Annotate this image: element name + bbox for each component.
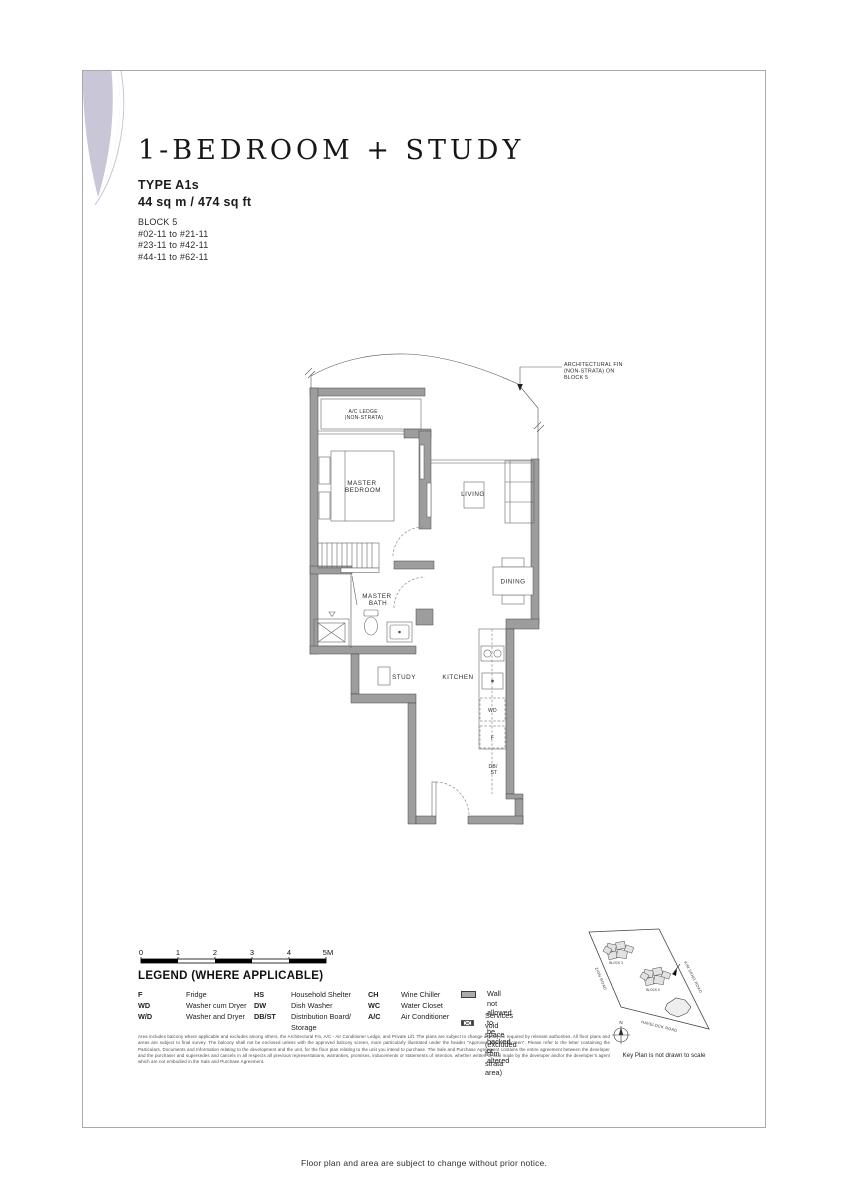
scale-tick: 3 — [250, 948, 254, 957]
legend-item: A/C Air Conditioner — [368, 1011, 449, 1022]
road-label-zion: ZION ROAD — [594, 966, 608, 990]
study-desk — [378, 667, 390, 685]
legend: LEGEND (WHERE APPLICABLE) F Fridge WD Wa… — [138, 970, 658, 982]
entry-door-leaf — [432, 782, 436, 816]
legend-item: WC Water Closet — [368, 1000, 449, 1011]
key-plan: BLOCK 3 BLOCK 5 ZION ROAD KIM SENG ROAD … — [581, 914, 739, 1064]
block3-label: BLOCK 3 — [609, 961, 623, 965]
entry — [432, 782, 469, 816]
shower — [314, 619, 349, 646]
ac-ledge-label: A/C LEDGE (NON-STRATA) — [345, 409, 384, 421]
dining-area: DINING — [493, 558, 533, 604]
wardrobe — [318, 543, 379, 573]
scale-seg — [289, 959, 326, 963]
arrow-down-icon — [517, 384, 523, 391]
road-label-kim-seng: KIM SENG ROAD — [683, 960, 703, 994]
legend-column-1: F Fridge WD Washer cum Dryer W/D Washer … — [138, 989, 247, 1022]
block5-label: BLOCK 5 — [646, 988, 660, 992]
scale-tick: 2 — [213, 948, 217, 957]
floorplan-page: { "header": { "title": "1-BEDROOM + STUD… — [0, 0, 848, 1200]
master-bedroom-label: MASTER BEDROOM — [345, 480, 381, 494]
hob — [481, 646, 504, 661]
legend-column-3: CH Wine Chiller WC Water Closet A/C Air … — [368, 989, 449, 1022]
page-title: 1-BEDROOM + STUDY — [138, 135, 524, 166]
bedroom-window — [318, 431, 404, 434]
break-mark — [305, 368, 315, 378]
legend-item: CH Wine Chiller — [368, 989, 449, 1000]
scale-tick: 1 — [176, 948, 180, 957]
kitchen: WD F KITCHEN DB/ ST — [442, 629, 506, 794]
living-window — [431, 460, 531, 463]
key-plan-caption: Key Plan is not drawn to scale — [623, 1052, 706, 1059]
legend-item: WD Washer cum Dryer — [138, 1000, 247, 1011]
page-footer: Floor plan and area are subject to chang… — [0, 1158, 848, 1168]
floor-plan: ARCHITECTURAL FIN (NON-STRATA) ON BLOCK … — [301, 351, 641, 851]
living-label: LIVING — [461, 491, 485, 498]
scale-tick: 5M — [323, 948, 333, 957]
nightstand — [319, 457, 330, 484]
dining-label: DINING — [500, 579, 525, 586]
petal-decoration — [83, 71, 145, 211]
legend-item: DW Dish Washer — [254, 1000, 351, 1011]
scale-bar: 0 1 2 3 4 5M — [135, 947, 355, 969]
sliding-door-panel — [427, 483, 431, 517]
scale-seg — [141, 959, 178, 963]
study-nook: STUDY — [378, 667, 416, 685]
kitchen-label: KITCHEN — [442, 674, 473, 681]
block3-cluster — [603, 941, 634, 960]
dbst-label: DB/ ST — [489, 764, 500, 776]
wall-no-hack-icon — [461, 991, 476, 998]
neighbour-building — [665, 998, 691, 1017]
master-bath-label: MASTER BATH — [362, 593, 394, 607]
living-room: LIVING — [461, 461, 534, 523]
legend-item: HS Household Shelter — [254, 989, 351, 1000]
legend-title: LEGEND (WHERE APPLICABLE) — [138, 970, 658, 982]
compass-needle — [619, 1028, 624, 1036]
road-label-havelock: HAVELOCK ROAD — [641, 1019, 678, 1033]
fin-annotation: ARCHITECTURAL FIN (NON-STRATA) ON BLOCK … — [517, 362, 624, 391]
unit-range: #44-11 to #62-11 — [138, 252, 208, 264]
sofa — [505, 461, 534, 523]
sliding-door-panel — [420, 445, 424, 479]
bedroom-door-arc — [393, 527, 425, 556]
nightstand — [319, 492, 330, 519]
block-info: BLOCK 5 #02-11 to #21-11 #23-11 to #42-1… — [138, 217, 208, 263]
scale-tick: 4 — [287, 948, 291, 957]
fin-label: ARCHITECTURAL FIN (NON-STRATA) ON BLOCK … — [564, 362, 624, 381]
floor-trap-icon — [329, 612, 335, 617]
block-label: BLOCK 5 — [138, 217, 208, 229]
kitchen-sink — [482, 673, 503, 689]
brochure-card: 1-BEDROOM + STUDY TYPE A1s 44 sq m / 474… — [82, 70, 766, 1128]
legend-item: F Fridge — [138, 989, 247, 1000]
wd-label: WD — [488, 708, 497, 714]
dining-chair — [502, 558, 524, 567]
bath-door-arc — [394, 577, 425, 608]
master-bath: MASTER BATH — [314, 574, 425, 648]
toilet — [364, 610, 378, 635]
master-bedroom: MASTER BEDROOM — [318, 451, 425, 573]
legend-column-2: HS Household Shelter DW Dish Washer DB/S… — [254, 989, 351, 1033]
unit-location-arrow — [672, 964, 680, 976]
walls — [310, 388, 539, 824]
compass: N — [612, 1020, 630, 1044]
unit-range: #23-11 to #42-11 — [138, 240, 208, 252]
vanity-sink — [387, 622, 412, 642]
unit-type: TYPE A1s — [138, 178, 199, 192]
compass-north-label: N — [619, 1020, 622, 1025]
unit-range: #02-11 to #21-11 — [138, 229, 208, 241]
dining-chair — [502, 595, 524, 604]
block5-cluster — [640, 967, 671, 986]
fridge-label: F — [491, 736, 494, 742]
entry-door-arc — [436, 782, 469, 816]
legend-item: DB/ST Distribution Board/ Storage — [254, 1011, 351, 1033]
ac-ledge: A/C LEDGE (NON-STRATA) — [318, 399, 421, 434]
study-label: STUDY — [392, 674, 416, 681]
bath-door-leaf — [352, 576, 357, 605]
scale-seg — [215, 959, 252, 963]
legal-disclaimer: Area includes balcony where applicable a… — [138, 1034, 610, 1065]
scale-tick: 0 — [139, 948, 143, 957]
legend-item: W/D Washer and Dryer — [138, 1011, 247, 1022]
unit-area: 44 sq m / 474 sq ft — [138, 195, 251, 209]
break-mark — [534, 422, 544, 432]
